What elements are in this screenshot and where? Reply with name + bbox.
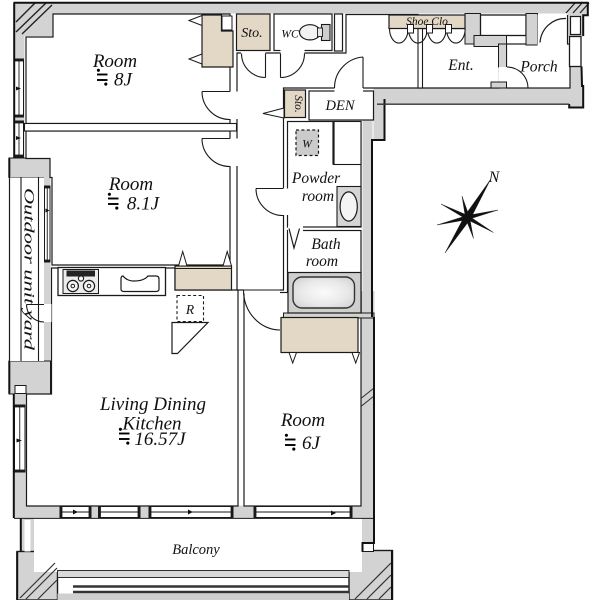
svg-text:16.57J: 16.57J — [134, 429, 187, 450]
svg-text:Shoe Clo: Shoe Clo — [406, 16, 448, 28]
svg-text:W: W — [302, 139, 313, 151]
svg-text:Bath: Bath — [311, 236, 341, 253]
svg-text:Sto.: Sto. — [241, 26, 262, 41]
svg-text:WC: WC — [281, 29, 299, 41]
svg-text:Room: Room — [108, 174, 153, 195]
svg-text:8.1J: 8.1J — [127, 194, 161, 215]
svg-text:R: R — [185, 302, 195, 317]
svg-text:room: room — [306, 253, 338, 270]
svg-text:room: room — [302, 188, 334, 205]
svg-text:6J: 6J — [302, 433, 322, 454]
svg-text:Powder: Powder — [291, 170, 341, 187]
svg-text:Balcony: Balcony — [172, 542, 220, 558]
svg-text:Sto.: Sto. — [292, 95, 304, 113]
svg-text:8J: 8J — [114, 70, 134, 91]
svg-text:Living Dining: Living Dining — [99, 394, 206, 415]
svg-text:DEN: DEN — [325, 98, 356, 114]
svg-text:Ent.: Ent. — [447, 57, 473, 74]
svg-text:Outdoor unit yard: Outdoor unit yard — [21, 188, 37, 351]
svg-text:Room: Room — [280, 410, 325, 431]
svg-text:N: N — [488, 169, 501, 186]
svg-text:Porch: Porch — [519, 59, 558, 76]
